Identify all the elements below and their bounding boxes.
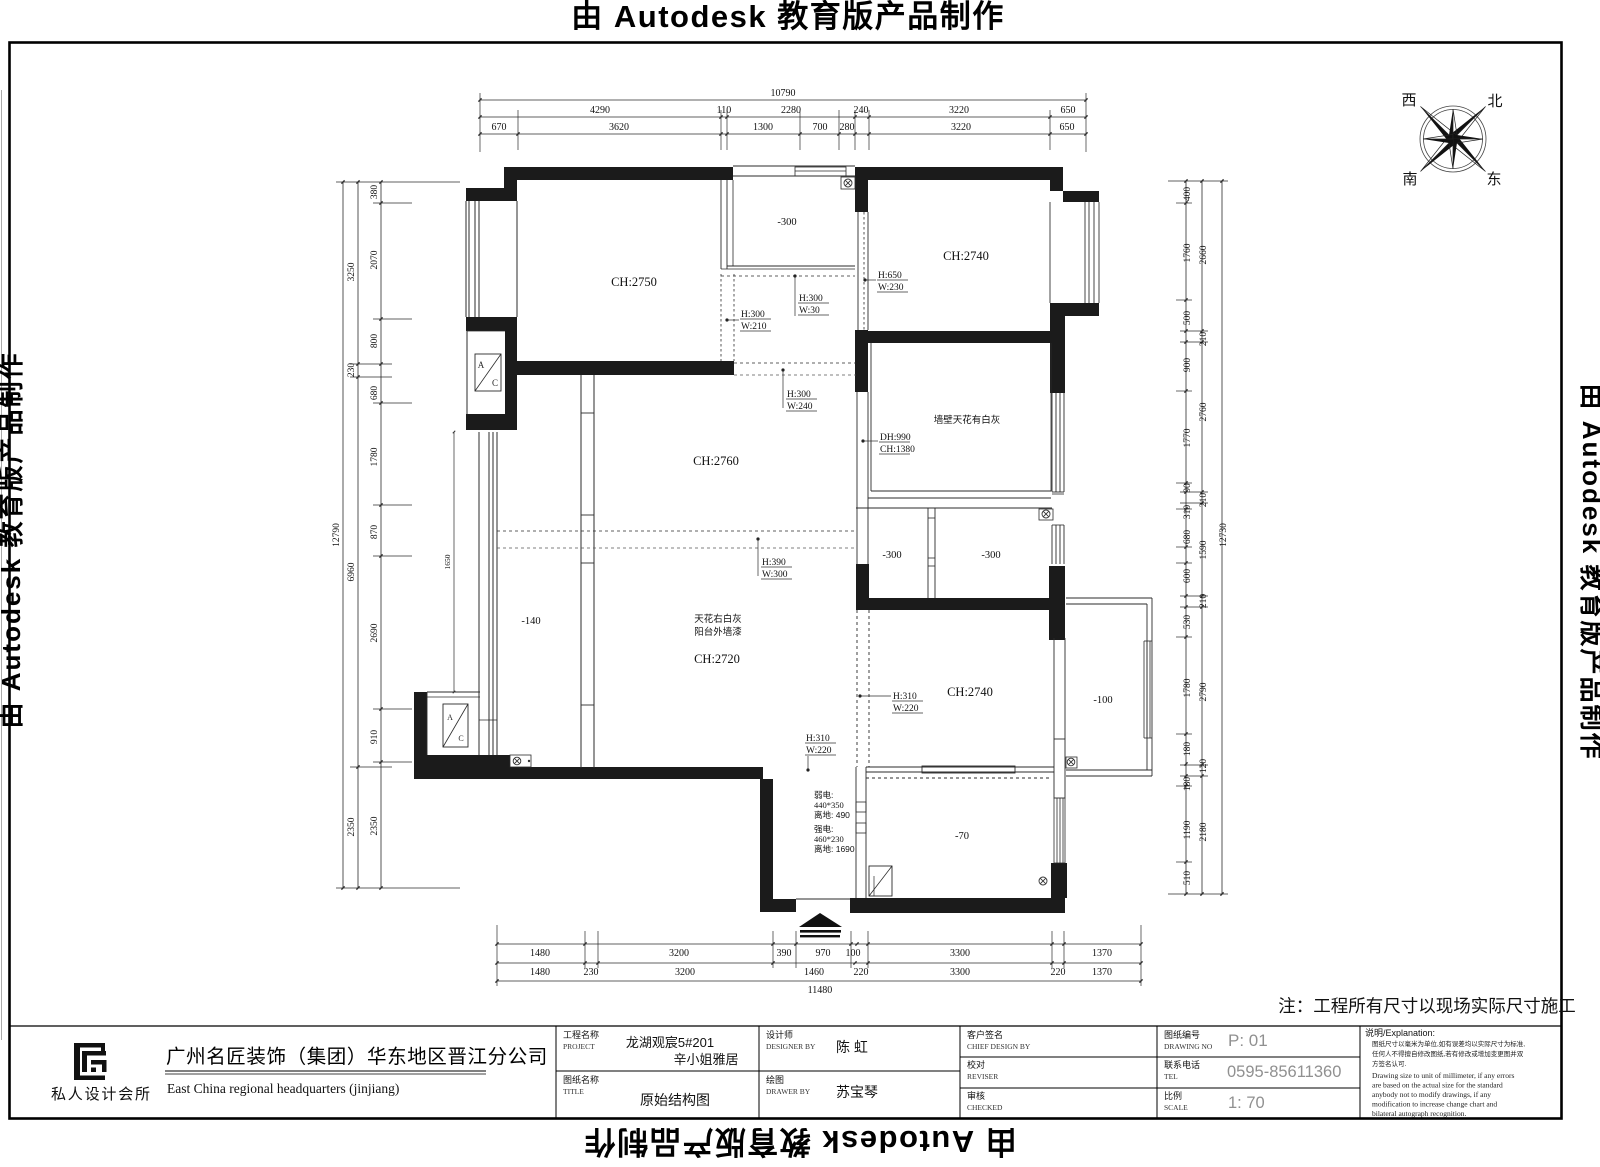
svg-text:注：工程所有尺寸以现场实际尺寸施工: 注：工程所有尺寸以现场实际尺寸施工 [1278, 996, 1576, 1016]
svg-text:工程名称: 工程名称 [563, 1029, 599, 1040]
svg-text:anybody not to modify drawings: anybody not to modify drawings, if any [1372, 1090, 1491, 1099]
svg-text:CH:2740: CH:2740 [943, 249, 989, 263]
svg-text:C: C [458, 734, 463, 743]
svg-text:CHECKED: CHECKED [967, 1103, 1003, 1112]
svg-text:1460: 1460 [804, 967, 824, 978]
svg-text:W:220: W:220 [806, 746, 832, 756]
svg-text:墙壁天花有白灰: 墙壁天花有白灰 [934, 414, 1001, 426]
svg-text:天花右白灰: 天花右白灰 [694, 613, 742, 625]
svg-text:240: 240 [854, 105, 869, 116]
svg-text:-300: -300 [981, 550, 1000, 561]
svg-text:210: 210 [1199, 332, 1209, 347]
svg-text:-140: -140 [521, 616, 540, 627]
svg-text:are based on the actual size f: are based on the actual size for the sta… [1372, 1081, 1503, 1090]
svg-text:DESIGNER BY: DESIGNER BY [766, 1042, 816, 1051]
svg-text:2280: 2280 [781, 105, 801, 116]
svg-text:3250: 3250 [347, 262, 357, 281]
svg-text:W:230: W:230 [878, 283, 904, 293]
svg-text:CH:2750: CH:2750 [611, 275, 657, 289]
svg-text:400: 400 [1183, 187, 1193, 202]
svg-text:2760: 2760 [1199, 402, 1209, 421]
svg-text:3200: 3200 [669, 948, 689, 959]
svg-text:北: 北 [1487, 93, 1502, 110]
svg-text:11480: 11480 [808, 985, 833, 996]
svg-text:3300: 3300 [950, 967, 970, 978]
svg-text:DRAWING NO: DRAWING NO [1164, 1042, 1213, 1051]
svg-text:H:300: H:300 [787, 390, 811, 400]
svg-text:审核: 审核 [967, 1090, 985, 1101]
svg-text:A: A [478, 360, 485, 370]
svg-text:西: 西 [1401, 92, 1416, 109]
svg-text:DRAWER BY: DRAWER BY [766, 1087, 811, 1096]
svg-text:1780: 1780 [370, 447, 380, 466]
svg-text:CH:2760: CH:2760 [693, 454, 739, 468]
svg-text:680: 680 [1183, 530, 1193, 545]
svg-text:3620: 3620 [609, 122, 629, 133]
svg-text:1370: 1370 [1092, 948, 1112, 959]
svg-text:原始结构图: 原始结构图 [640, 1092, 710, 1108]
svg-text:3300: 3300 [950, 948, 970, 959]
svg-text:1590: 1590 [1199, 540, 1209, 559]
svg-text:530: 530 [1183, 615, 1193, 630]
svg-text:800: 800 [370, 334, 380, 349]
svg-text:2070: 2070 [370, 250, 380, 269]
svg-text:离地: 1690: 离地: 1690 [814, 844, 855, 854]
svg-text:由 Autodesk 教育版产品制作: 由 Autodesk 教育版产品制作 [1577, 384, 1600, 761]
svg-text:P: 01: P: 01 [1228, 1031, 1268, 1050]
svg-text:W:210: W:210 [741, 322, 767, 332]
svg-text:由 Autodesk 教育版产品制作: 由 Autodesk 教育版产品制作 [0, 352, 26, 729]
svg-text:H:390: H:390 [762, 558, 786, 568]
svg-text:10790: 10790 [771, 88, 796, 99]
svg-text:校对: 校对 [967, 1059, 985, 1070]
svg-text:2660: 2660 [1199, 245, 1209, 264]
svg-text:90: 90 [1183, 483, 1193, 493]
svg-text:-300: -300 [882, 550, 901, 561]
svg-text:380: 380 [370, 185, 380, 200]
svg-text:1650: 1650 [443, 554, 452, 569]
svg-text:图纸编号: 图纸编号 [1164, 1029, 1200, 1040]
svg-text:REVISER: REVISER [967, 1072, 998, 1081]
svg-text:680: 680 [370, 386, 380, 401]
svg-text:方签名认可.: 方签名认可. [1372, 1059, 1407, 1068]
svg-text:广州名匠装饰（集团）华东地区晋江分公司: 广州名匠装饰（集团）华东地区晋江分公司 [166, 1046, 548, 1068]
svg-text:700: 700 [813, 122, 828, 133]
svg-text:联系电话: 联系电话 [1164, 1059, 1200, 1070]
svg-text:龙湖观宸5#201: 龙湖观宸5#201 [626, 1035, 714, 1050]
svg-text:强电:: 强电: [814, 824, 833, 834]
svg-text:H:310: H:310 [893, 692, 917, 702]
svg-text:650: 650 [1060, 122, 1075, 133]
svg-text:bilateral autograph recognitio: bilateral autograph recognition. [1372, 1109, 1466, 1118]
svg-text:C: C [492, 378, 498, 388]
svg-text:私人设计会所: 私人设计会所 [51, 1086, 152, 1103]
svg-text:1300: 1300 [753, 122, 773, 133]
svg-text:TITLE: TITLE [563, 1087, 584, 1096]
svg-text:1480: 1480 [530, 967, 550, 978]
svg-text:110: 110 [717, 105, 732, 116]
svg-text:12730: 12730 [1219, 523, 1229, 547]
svg-text:2350: 2350 [347, 817, 357, 836]
svg-text:东: 东 [1486, 171, 1501, 188]
svg-text:910: 910 [370, 730, 380, 745]
svg-text:220: 220 [1051, 967, 1066, 978]
svg-text:1760: 1760 [1183, 243, 1193, 262]
svg-text:12790: 12790 [332, 523, 342, 547]
svg-text:440*350: 440*350 [814, 800, 844, 810]
svg-text:A: A [447, 713, 453, 722]
svg-text:CH:2720: CH:2720 [694, 652, 740, 666]
svg-text:3200: 3200 [675, 967, 695, 978]
svg-text:510: 510 [1183, 871, 1193, 886]
svg-text:3220: 3220 [949, 105, 969, 116]
svg-text:离地: 490: 离地: 490 [814, 810, 850, 820]
svg-text:TEL: TEL [1164, 1072, 1178, 1081]
svg-text:说明/Explanation:: 说明/Explanation: [1365, 1027, 1435, 1038]
svg-text:500: 500 [1183, 311, 1193, 326]
svg-text:苏宝琴: 苏宝琴 [836, 1084, 878, 1100]
svg-text:0595-85611360: 0595-85611360 [1227, 1063, 1341, 1081]
svg-text:由 Autodesk 教育版产品制作: 由 Autodesk 教育版产品制作 [571, 0, 1005, 34]
svg-text:4290: 4290 [590, 105, 610, 116]
svg-text:3220: 3220 [951, 122, 971, 133]
svg-text:390: 390 [777, 948, 792, 959]
svg-text:-100: -100 [1093, 695, 1112, 706]
svg-text:modification to increase chang: modification to increase change chart an… [1372, 1100, 1497, 1109]
svg-text:900: 900 [1183, 358, 1193, 373]
svg-text:280: 280 [840, 122, 855, 133]
svg-text:弱电:: 弱电: [814, 790, 833, 800]
svg-text:180: 180 [1183, 777, 1193, 792]
svg-text:6960: 6960 [347, 562, 357, 581]
svg-text:230: 230 [584, 967, 599, 978]
svg-text:1480: 1480 [530, 948, 550, 959]
svg-text:PROJECT: PROJECT [563, 1042, 595, 1051]
svg-text:W:30: W:30 [799, 306, 820, 316]
svg-text:870: 870 [370, 525, 380, 540]
svg-text:2690: 2690 [370, 623, 380, 642]
svg-text:H:300: H:300 [799, 294, 823, 304]
svg-text:CH:2740: CH:2740 [947, 685, 993, 699]
svg-text:310: 310 [1183, 505, 1193, 520]
svg-text:CH:1380: CH:1380 [880, 445, 915, 455]
svg-text:180: 180 [1183, 742, 1193, 757]
svg-text:670: 670 [492, 122, 507, 133]
svg-text:CHIEF DESIGN BY: CHIEF DESIGN BY [967, 1042, 1031, 1051]
svg-text:陈 虹: 陈 虹 [836, 1039, 868, 1055]
svg-text:任何人不得擅自修改图纸,若有修改或增加变更图并双: 任何人不得擅自修改图纸,若有修改或增加变更图并双 [1372, 1049, 1524, 1058]
svg-text:W:300: W:300 [762, 570, 788, 580]
svg-text:DH:990: DH:990 [880, 433, 911, 443]
svg-text:Drawing size to unit of millim: Drawing size to unit of millimeter, if a… [1372, 1071, 1514, 1080]
svg-text:120: 120 [1199, 759, 1209, 774]
svg-text:2180: 2180 [1199, 822, 1209, 841]
svg-text:H:650: H:650 [878, 271, 902, 281]
svg-text:970: 970 [816, 948, 831, 959]
svg-text:图纸尺寸以毫米为单位,如有误差均以实际尺寸为标准,: 图纸尺寸以毫米为单位,如有误差均以实际尺寸为标准, [1372, 1039, 1525, 1048]
svg-text:由 Autodesk 教育版产品制作: 由 Autodesk 教育版产品制作 [583, 1124, 1017, 1159]
svg-text:绘图: 绘图 [766, 1074, 784, 1085]
svg-text:设计师: 设计师 [766, 1029, 793, 1040]
svg-text:210: 210 [1199, 493, 1209, 508]
svg-text:100: 100 [846, 948, 861, 959]
svg-text:220: 220 [854, 967, 869, 978]
svg-text:230: 230 [347, 363, 357, 378]
svg-text:2790: 2790 [1199, 682, 1209, 701]
svg-text:-70: -70 [955, 831, 969, 842]
svg-text:-300: -300 [777, 217, 796, 228]
svg-text:阳台外墙漆: 阳台外墙漆 [694, 626, 742, 638]
svg-text:1770: 1770 [1183, 428, 1193, 447]
svg-text:East China regional headquarte: East China regional headquarters (jinjia… [167, 1081, 399, 1096]
svg-text:1: 70: 1: 70 [1228, 1094, 1265, 1112]
svg-text:W:240: W:240 [787, 402, 813, 412]
svg-text:1370: 1370 [1092, 967, 1112, 978]
svg-text:2350: 2350 [370, 816, 380, 835]
svg-text:1780: 1780 [1183, 678, 1193, 697]
svg-text:SCALE: SCALE [1164, 1103, 1188, 1112]
svg-text:1190: 1190 [1183, 820, 1193, 839]
svg-text:600: 600 [1183, 569, 1193, 584]
svg-text:650: 650 [1061, 105, 1076, 116]
svg-text:南: 南 [1402, 171, 1417, 188]
svg-text:H:310: H:310 [806, 734, 830, 744]
svg-text:图纸名称: 图纸名称 [563, 1074, 599, 1085]
svg-text:460*230: 460*230 [814, 834, 844, 844]
svg-text:W:220: W:220 [893, 704, 919, 714]
svg-text:辛小姐雅居: 辛小姐雅居 [673, 1052, 738, 1067]
svg-text:比例: 比例 [1164, 1090, 1182, 1101]
svg-text:H:300: H:300 [741, 310, 765, 320]
svg-text:客户签名: 客户签名 [967, 1029, 1003, 1040]
